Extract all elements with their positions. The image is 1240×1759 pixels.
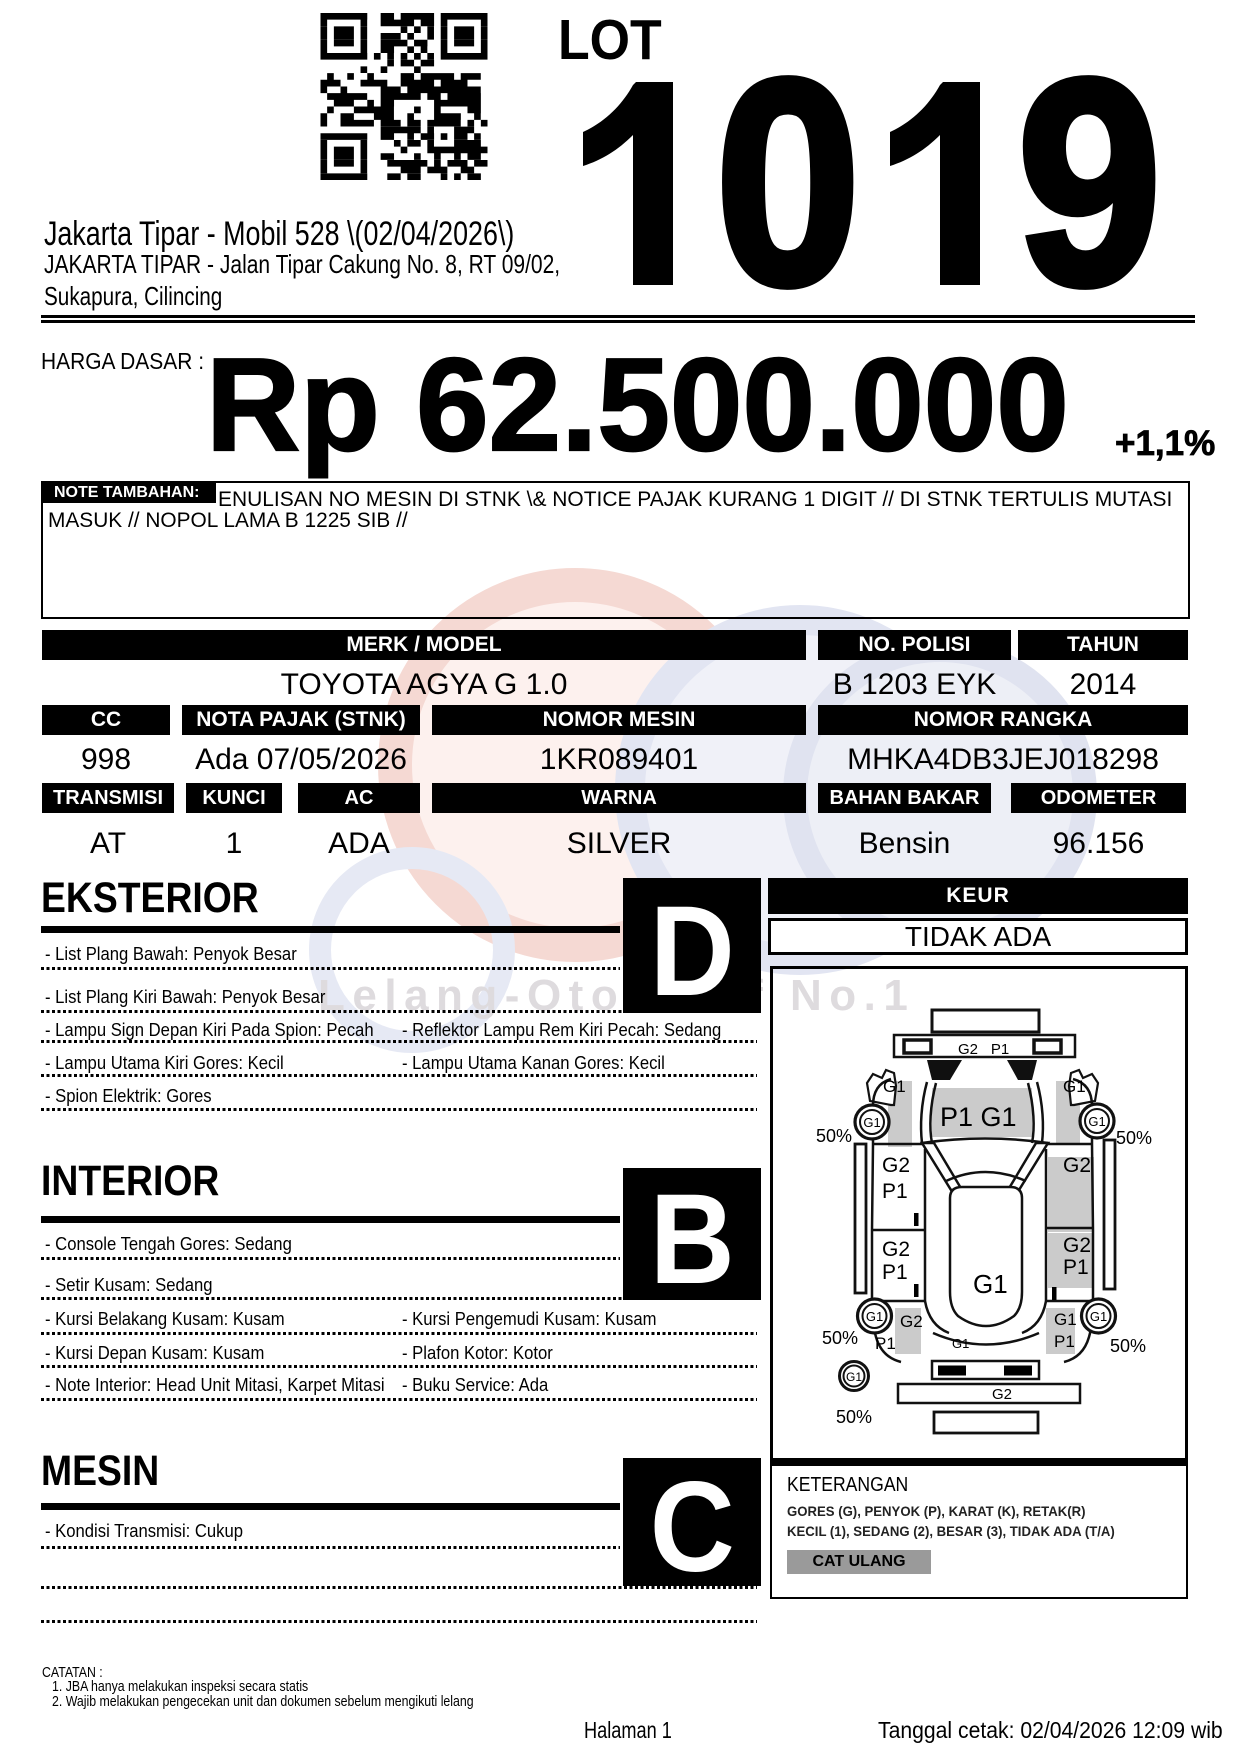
- svg-text:G1: G1: [1088, 1114, 1105, 1129]
- svg-text:G1: G1: [866, 1309, 883, 1324]
- svg-text:P1: P1: [1063, 1256, 1089, 1279]
- svg-text:G1: G1: [846, 1370, 862, 1384]
- svg-text:G2: G2: [900, 1312, 923, 1331]
- svg-text:P1: P1: [991, 1041, 1009, 1058]
- svg-text:0: 0: [715, 60, 860, 300]
- svg-text:G1: G1: [1090, 1309, 1107, 1324]
- svg-text:50%: 50%: [816, 1126, 852, 1146]
- svg-text:G2: G2: [882, 1154, 910, 1177]
- svg-text:G1: G1: [1063, 1077, 1086, 1096]
- svg-text:P1 G1: P1 G1: [940, 1102, 1017, 1132]
- svg-text:G1: G1: [1054, 1310, 1077, 1329]
- svg-text:G1: G1: [952, 1336, 969, 1351]
- svg-text:G1: G1: [863, 1115, 880, 1130]
- svg-text:P1: P1: [882, 1180, 908, 1203]
- svg-text:50%: 50%: [836, 1407, 872, 1427]
- svg-text:G2: G2: [958, 1041, 978, 1058]
- svg-text:G1: G1: [883, 1077, 906, 1096]
- svg-text:9: 9: [1017, 60, 1161, 300]
- svg-text:G2: G2: [1063, 1154, 1091, 1177]
- svg-text:50%: 50%: [1116, 1128, 1152, 1148]
- svg-text:G2: G2: [992, 1386, 1012, 1403]
- svg-text:P1: P1: [1054, 1332, 1075, 1351]
- svg-text:G2: G2: [882, 1238, 910, 1261]
- svg-text:G1: G1: [973, 1269, 1008, 1299]
- svg-text:50%: 50%: [822, 1328, 858, 1348]
- svg-text:G2: G2: [1063, 1234, 1091, 1257]
- svg-text:50%: 50%: [1110, 1336, 1146, 1356]
- svg-text:P1: P1: [882, 1261, 908, 1284]
- svg-text:P1: P1: [875, 1334, 896, 1353]
